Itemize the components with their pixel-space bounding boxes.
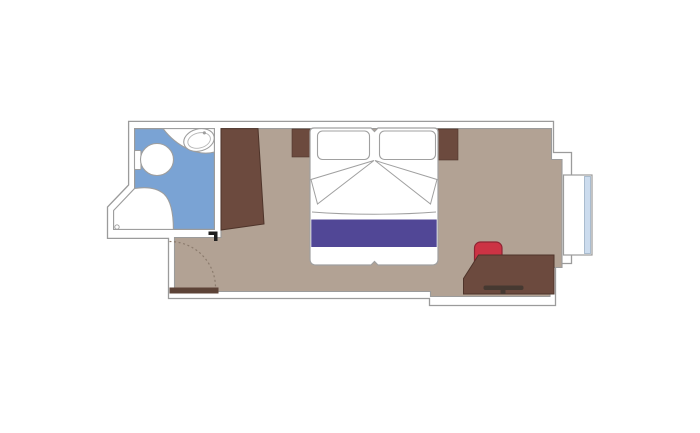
drawer-handle-stem <box>501 290 506 294</box>
entry-door <box>170 288 219 294</box>
wardrobe <box>221 129 264 230</box>
drawer-handle-bar <box>484 286 524 291</box>
nightstand-right <box>438 129 458 160</box>
window-unit <box>564 175 593 255</box>
double-bed <box>310 128 438 265</box>
toilet-bowl <box>141 144 174 176</box>
floor-plan-svg <box>0 0 700 433</box>
pillow-left <box>318 131 370 160</box>
shower-drain-icon <box>115 225 119 229</box>
floor-plan-canvas <box>0 0 700 433</box>
bed-runner <box>311 220 436 248</box>
window-glass <box>585 177 591 254</box>
nightstand-left <box>292 129 310 157</box>
pillow-right <box>380 131 436 160</box>
